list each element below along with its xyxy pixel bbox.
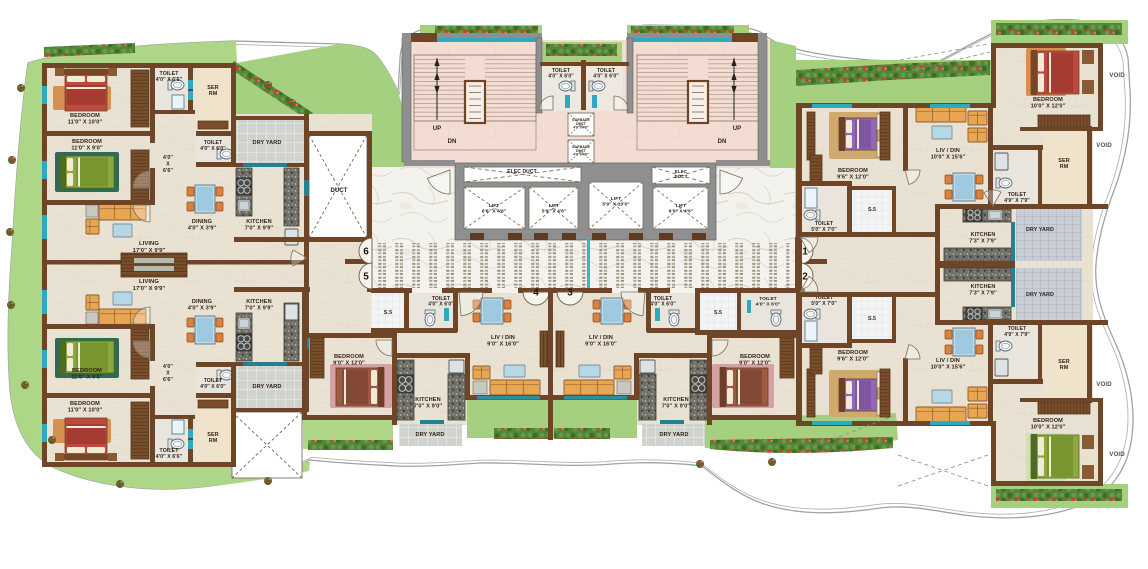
svg-text:6: 6	[363, 246, 369, 257]
svg-text:5: 5	[363, 271, 369, 282]
svg-text:BEDROOM9′0″ X 12′0″: BEDROOM9′0″ X 12′0″	[333, 354, 365, 367]
svg-text:KITCHEN7′0″ X 9′0″: KITCHEN7′0″ X 9′0″	[414, 397, 443, 410]
svg-text:DRY YARD: DRY YARD	[1026, 227, 1054, 233]
svg-text:BEDROOM11′0″ X 9′0″: BEDROOM11′0″ X 9′0″	[71, 139, 103, 152]
svg-text:LIV / DIN9′0″ X 16′0″: LIV / DIN9′0″ X 16′0″	[487, 335, 519, 348]
svg-text:S.5: S.5	[868, 207, 876, 213]
svg-text:BEDROOM9′0″ X 12′0″: BEDROOM9′0″ X 12′0″	[739, 354, 771, 367]
svg-text:KITCHEN7′0″ X 9′9″: KITCHEN7′0″ X 9′9″	[245, 299, 274, 312]
svg-text:DRY YARD: DRY YARD	[252, 140, 281, 146]
svg-text:DUCT: DUCT	[330, 188, 347, 194]
svg-text:DRY YARD: DRY YARD	[252, 384, 281, 390]
svg-text:UP: UP	[433, 126, 442, 132]
svg-text:ELECDUCT: ELECDUCT	[674, 169, 687, 179]
svg-text:DRY YARD: DRY YARD	[1026, 292, 1054, 298]
svg-text:DN: DN	[718, 139, 727, 145]
svg-text:SERRM: SERRM	[207, 85, 218, 97]
svg-text:LIV / DIN9′0″ X 16′0″: LIV / DIN9′0″ X 16′0″	[585, 335, 617, 348]
svg-text:UP: UP	[733, 126, 742, 132]
svg-text:DRY YARD: DRY YARD	[415, 432, 444, 438]
svg-text:DRY YARD: DRY YARD	[659, 432, 688, 438]
svg-text:VOID: VOID	[1109, 451, 1125, 458]
svg-text:VOID: VOID	[1096, 381, 1112, 388]
svg-text:SERRM: SERRM	[1058, 359, 1069, 371]
svg-text:SERRM: SERRM	[207, 432, 218, 444]
svg-text:BEDROOM9′6″ X 12′0″: BEDROOM9′6″ X 12′0″	[837, 350, 869, 363]
svg-text:SERRM: SERRM	[1058, 158, 1069, 170]
svg-text:BEDROOM11′0″ X 10′0″: BEDROOM11′0″ X 10′0″	[68, 113, 103, 126]
svg-text:KITCHEN7′0″ X 9′0″: KITCHEN7′0″ X 9′0″	[662, 397, 691, 410]
svg-text:VOID: VOID	[1096, 142, 1112, 149]
svg-text:KITCHEN7′3″ X 7′9″: KITCHEN7′3″ X 7′9″	[969, 232, 997, 244]
svg-text:ELEC DUCT: ELEC DUCT	[507, 169, 537, 175]
svg-text:DN: DN	[448, 139, 457, 145]
svg-text:BEDROOM11′0″ X 10′0″: BEDROOM11′0″ X 10′0″	[68, 401, 103, 414]
svg-text:KITCHEN7′0″ X 9′9″: KITCHEN7′0″ X 9′9″	[245, 219, 274, 232]
svg-text:BEDROOM11′0″ X 9′0″: BEDROOM11′0″ X 9′0″	[71, 368, 103, 381]
svg-text:S.5: S.5	[384, 310, 392, 316]
svg-text:S.5: S.5	[868, 316, 876, 322]
svg-text:3: 3	[567, 287, 573, 298]
svg-text:4: 4	[533, 287, 539, 298]
svg-text:KITCHEN7′3″ X 7′9″: KITCHEN7′3″ X 7′9″	[969, 284, 997, 296]
svg-text:BEDROOM10′0″ X 12′0″: BEDROOM10′0″ X 12′0″	[1031, 418, 1066, 431]
svg-text:S.5: S.5	[714, 310, 722, 316]
svg-text:BEDROOM9′6″ X 12′0″: BEDROOM9′6″ X 12′0″	[837, 168, 869, 181]
svg-text:VOID: VOID	[1109, 72, 1125, 79]
svg-text:BEDROOM10′0″ X 12′0″: BEDROOM10′0″ X 12′0″	[1031, 97, 1066, 110]
